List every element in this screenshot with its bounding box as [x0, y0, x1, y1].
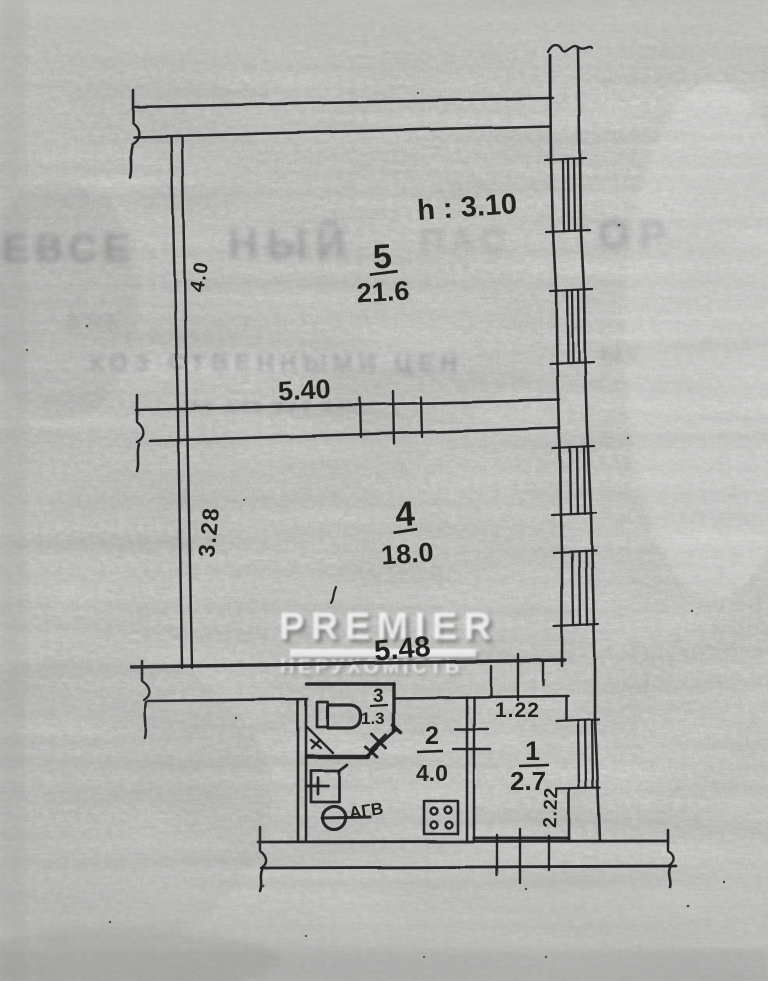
svg-text:3.28: 3.28: [193, 505, 224, 558]
svg-text:5.48: 5.48: [373, 631, 432, 668]
svg-text:18.0: 18.0: [380, 537, 435, 571]
svg-text:НЫЙ: НЫЙ: [228, 219, 354, 267]
svg-text:2.22: 2.22: [540, 786, 562, 828]
svg-text:5: 5: [372, 238, 393, 277]
svg-text:4.0: 4.0: [416, 760, 448, 786]
svg-text:НЕРУХОМІСТЬ: НЕРУХОМІСТЬ: [280, 656, 463, 678]
svg-text:21.6: 21.6: [356, 276, 410, 309]
svg-text:1.3: 1.3: [361, 709, 385, 728]
svg-text:1: 1: [525, 736, 540, 766]
svg-text:5.40: 5.40: [277, 374, 331, 407]
svg-text:2: 2: [425, 722, 439, 750]
svg-text:ХОЗ СТВЕННЫМИ ЦЕН: ХОЗ СТВЕННЫМИ ЦЕН: [88, 350, 463, 377]
svg-text:ПАС: ПАС: [420, 222, 511, 260]
svg-text:1.22: 1.22: [495, 699, 540, 722]
svg-text:3: 3: [373, 686, 384, 707]
